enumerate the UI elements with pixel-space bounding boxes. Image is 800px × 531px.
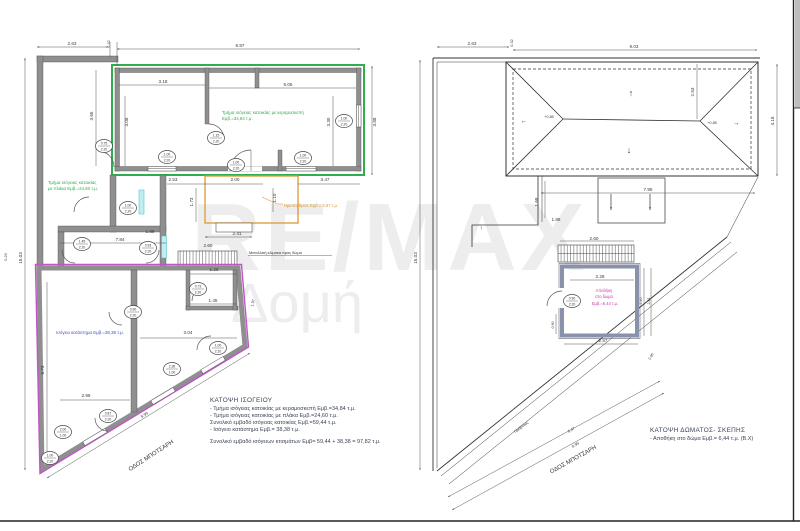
door-tag: 0.872.20: [100, 410, 117, 423]
door-tag-value: 1.00: [60, 433, 67, 437]
ground-floor-legend: ΚΑΤΟΨΗ ΙΣΟΓΕΙΟΥ - Τμήμα ισόγειας κατοικί…: [210, 398, 381, 446]
door-tag-value: 2.20: [105, 417, 112, 421]
door-tag-value: 2.20: [341, 122, 348, 126]
roof-title: ΚΑΤΟΨΗ ΔΩΜΑΤΟΣ- ΣΚΕΠΗΣ: [650, 428, 753, 435]
dim-label: 2.63: [68, 41, 77, 46]
watermark: RE/MAX Δομή: [191, 184, 588, 334]
door-tag: 2.001.00: [55, 426, 72, 439]
roof-storage-label: στο δώμα: [595, 294, 613, 299]
dim-label: 2.60: [590, 236, 599, 241]
dim-label: 15.03: [413, 252, 418, 264]
dim-label: 2.41: [233, 231, 242, 236]
dim-label: 0.90: [551, 322, 555, 329]
dim-label: 8.99: [571, 441, 580, 449]
dim-label: 6.47: [567, 426, 576, 434]
door-tag: 1.002.20: [159, 151, 176, 164]
dim-label: 1.73: [189, 197, 194, 206]
stair-label: Μεταλλική κλίμακα προς δώμα: [249, 250, 303, 255]
roof-storage-area-label: Εμβ.=6,44 τ.μ.: [592, 301, 618, 306]
dim-label: 6.73: [40, 365, 45, 374]
dim-label: 4.18: [770, 116, 775, 125]
dim-label: 0.32: [107, 40, 111, 47]
door-tag-value: 2.20: [47, 459, 54, 463]
door-tag-value: 2.20: [101, 147, 108, 151]
dim-label: 1.26: [210, 267, 219, 272]
dim-label: +0,85: [707, 121, 717, 125]
tile-roof-area-label: Εμβ.=34,84 τ.μ.: [222, 116, 253, 121]
door-tag: 0.902.20: [125, 306, 142, 319]
dim-label: 2.57: [599, 338, 608, 343]
door-tag: 0.902.20: [564, 295, 581, 308]
ridge-line: [563, 119, 700, 121]
legend-total-line: Συνολικό εμβαδό ισόγειων κτισμάτων Εμβ= …: [210, 439, 381, 446]
dim-label: +0,85: [544, 115, 554, 119]
dim-label: 1.88: [552, 217, 561, 222]
dim-label: ↓: [627, 145, 632, 155]
dim-label: 0.96: [648, 352, 655, 360]
door-tag: 1.152.20: [208, 132, 225, 145]
floor-plan-drawing: RE/MAX Δομή: [0, 0, 800, 531]
door-tag-value: 1.00: [164, 153, 171, 157]
dim-label: 7.84: [116, 237, 125, 242]
roof-storage-label: Αποθήκη: [596, 288, 613, 293]
door-tag-value: 0.90: [130, 308, 137, 312]
dim-label: 2.99: [82, 393, 91, 398]
door-tag: 0.932.20: [140, 242, 157, 255]
hip-roof: [506, 62, 758, 176]
door-tag-value: 1.00: [233, 161, 240, 165]
dim-label: 2.60: [204, 243, 213, 248]
door-tag: 1.002.20: [42, 452, 59, 465]
metal-stair: [558, 245, 634, 262]
door-tag-value: 2.20: [130, 313, 137, 317]
semi-open-area-label: Ημιυπαίθριος Εμβ.= 3,97 τ.μ.: [284, 203, 338, 208]
legend-line: - Ισόγειο κατάστημα Εμβ.= 38,38 τ.μ.: [210, 427, 381, 434]
legend-line: Συνολικό εμβαδό ισόγειας κατοικίας Εμβ.=…: [210, 420, 381, 427]
cantilever-label: Πρόβολος: [513, 420, 529, 434]
door-tag-value: 1.00: [169, 370, 176, 374]
door-tag-value: 0.93: [145, 244, 152, 248]
dim-label: 2.53: [169, 177, 178, 182]
dim-label: 2.81: [647, 298, 651, 305]
dim-label: 2.40: [639, 298, 643, 305]
dim-label: 3.04: [184, 330, 193, 335]
legend-line: - Τμήμα ισόγειας κατοικίας με πλάκα Εμβ.…: [210, 413, 381, 420]
door-tag: 0.752.20: [96, 140, 113, 153]
dim-label: 1.68: [534, 197, 539, 206]
door-tag-value: 0.87: [105, 412, 112, 416]
dim-label: 9.03: [630, 44, 639, 49]
door-tag-value: 2.20: [125, 209, 132, 213]
tile-roof-section-label: Τμήμα ισόγειας κατοικίας με κεραμοσκεπή: [222, 110, 304, 115]
dim-label: ↑: [629, 88, 634, 98]
dim-label: 2.63: [468, 41, 477, 46]
dim-label: 5.05: [284, 82, 293, 87]
door-tag: 1.002.20: [295, 152, 312, 165]
door-tag-value: 1.45: [79, 240, 86, 244]
street-label: ΟΔΟΣ ΜΠΟΤΣΑΡΗ: [128, 439, 175, 472]
dim-label: 3.08: [124, 117, 129, 126]
dim-label: ↑: [480, 226, 483, 232]
dim-label: 2.00: [231, 177, 240, 182]
street-label: ΟΔΟΣ ΜΠΟΤΣΑΡΗ: [549, 445, 598, 476]
door-tag-value: 2.20: [195, 290, 202, 294]
door-tag-value: 0.75: [101, 142, 108, 146]
legend-line: - Αποθήκη στο δώμα Εμβ.= 6,44 τ.μ. (Β.Χ): [650, 436, 753, 443]
door-tag-value: 2.20: [215, 349, 222, 353]
door-tag-value: 2.20: [164, 158, 171, 162]
dim-label: 3.30: [326, 117, 331, 126]
dim-label: 0.20: [4, 253, 8, 260]
shop-area-label: Ισόγειο κατάστημα Εμβ.=38,38 τ.μ.: [56, 330, 124, 335]
perimeter-walls: [37, 56, 118, 268]
dim-label: 1.10: [272, 193, 277, 202]
dim-label: ←: [521, 118, 528, 125]
door-tag-value: 0.90: [569, 297, 576, 301]
door-tag: 0.732.20: [190, 283, 207, 296]
dim-label: 1.88: [146, 229, 155, 234]
door-tag-value: 2.20: [213, 139, 220, 143]
slab-section-label: Τμήμα ισόγειας κατοικίας: [48, 180, 96, 185]
dim-label: 3.47: [321, 177, 330, 182]
door-tag-value: 1.00: [341, 117, 348, 121]
door-tag-value: 2.20: [79, 245, 86, 249]
door-tag-value: 2.20: [145, 249, 152, 253]
door-tag: 1.002.20: [210, 342, 227, 355]
dim-label: 3.18: [159, 79, 168, 84]
dim-label: 2.53: [690, 87, 695, 96]
dim-label: 15.03: [18, 252, 23, 264]
door-tag-value: 2.36: [169, 365, 176, 369]
dim-label: 2.28: [596, 274, 605, 279]
door-tag-value: 2.20: [300, 159, 307, 163]
door-tag-value: 1.15: [213, 134, 220, 138]
door-tag: 2.361.00: [164, 363, 181, 376]
dim-label: 7.95: [644, 187, 653, 192]
dim-label: →: [733, 120, 740, 127]
door-tag-value: 1.00: [300, 154, 307, 158]
dim-label: 8.87: [236, 43, 245, 48]
door-tag-value: 2.20: [233, 166, 240, 170]
roof-door-tags: 0.902.20: [564, 295, 581, 308]
roof-legend: ΚΑΤΟΨΗ ΔΩΜΑΤΟΣ- ΣΚΕΠΗΣ - Αποθήκη στο δώμ…: [650, 428, 753, 443]
door-tag: 1.002.20: [336, 115, 353, 128]
door-tag-value: 1.00: [215, 344, 222, 348]
dim-label: 1.45: [209, 298, 218, 303]
door-tag: 1.002.20: [120, 202, 137, 215]
ground-floor-title: ΚΑΤΟΨΗ ΙΣΟΓΕΙΟΥ: [210, 398, 381, 405]
door-tag-value: 0.73: [195, 285, 202, 289]
slab-area-label: με πλάκα Εμβ.=24,60 τ.μ.: [48, 186, 98, 191]
dim-label: 3.88: [372, 117, 377, 126]
door-tag-value: 1.00: [47, 454, 54, 458]
door-tag-value: 2.00: [60, 428, 67, 432]
dim-label: 3.65: [89, 111, 94, 120]
door-tag-value: 2.20: [569, 302, 576, 306]
windows: [83, 356, 226, 445]
door-tag: 1.452.20: [74, 238, 91, 251]
door-tag-value: 1.00: [125, 204, 132, 208]
dim-label: 0.32: [510, 39, 514, 46]
door-tag: 1.002.20: [228, 159, 245, 172]
